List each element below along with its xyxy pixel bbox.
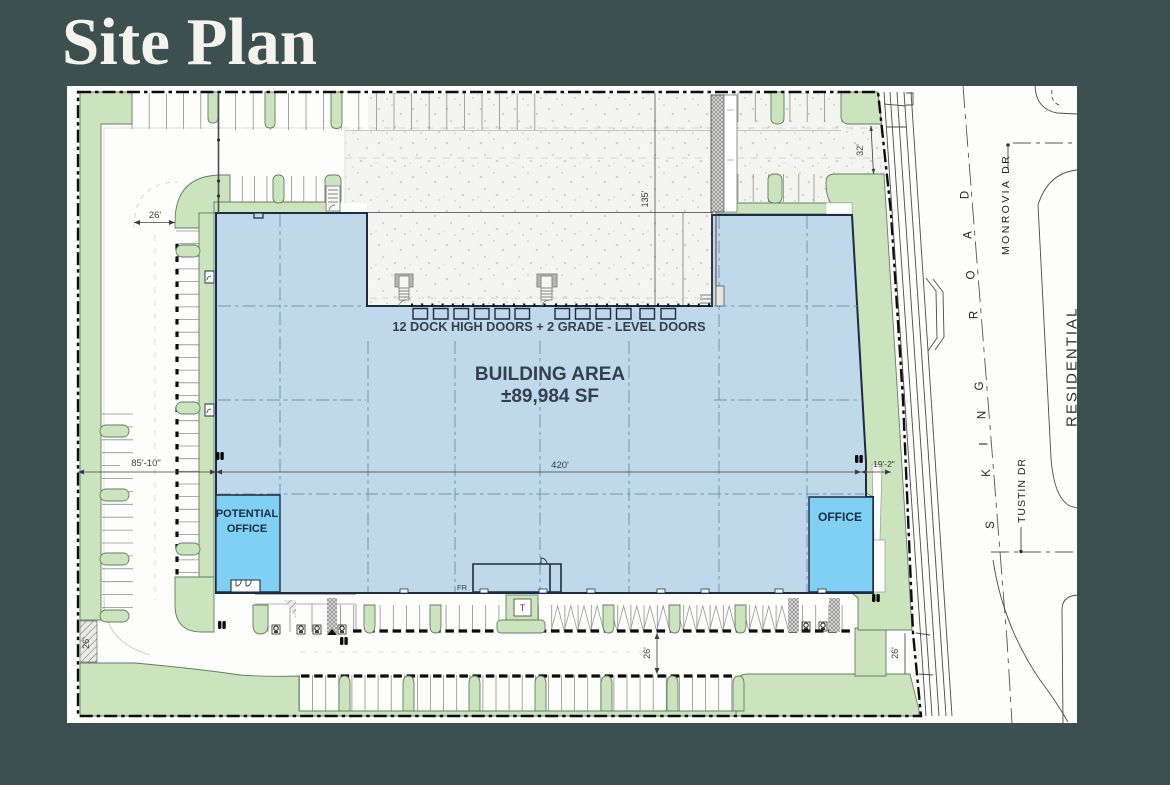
svg-text:K: K — [981, 469, 993, 477]
svg-text:MONROVIA DR: MONROVIA DR — [1000, 154, 1012, 255]
svg-text:N: N — [976, 411, 988, 419]
svg-text:26': 26' — [890, 647, 900, 659]
svg-text:D: D — [960, 191, 972, 199]
svg-text:85'-10": 85'-10" — [131, 458, 160, 469]
svg-text:26': 26' — [149, 210, 162, 221]
svg-text:OFFICE: OFFICE — [227, 523, 267, 535]
svg-text:I: I — [979, 442, 991, 445]
svg-text:19'-2": 19'-2" — [873, 459, 895, 469]
svg-text:Site Plan: Site Plan — [62, 5, 317, 79]
svg-text:135': 135' — [640, 190, 650, 207]
svg-text:OFFICE: OFFICE — [818, 510, 862, 524]
svg-text:12 DOCK HIGH DOORS + 2 GRADE -: 12 DOCK HIGH DOORS + 2 GRADE - LEVEL DOO… — [392, 320, 705, 334]
svg-text:BUILDING AREA: BUILDING AREA — [475, 364, 626, 385]
svg-text:T: T — [520, 603, 526, 613]
svg-text:26': 26' — [81, 637, 91, 649]
svg-text:R: R — [969, 311, 981, 319]
svg-text:FR: FR — [457, 583, 468, 592]
svg-text:G: G — [974, 381, 986, 390]
svg-text:POTENTIAL: POTENTIAL — [216, 508, 279, 520]
svg-text:TUSTIN DR: TUSTIN DR — [1016, 458, 1028, 523]
svg-text:O: O — [966, 270, 978, 279]
svg-text:±89,984 SF: ±89,984 SF — [501, 386, 599, 407]
svg-text:A: A — [963, 231, 975, 239]
svg-text:420': 420' — [551, 460, 569, 471]
svg-text:26': 26' — [642, 647, 652, 659]
svg-text:32': 32' — [855, 144, 865, 156]
svg-text:S: S — [985, 521, 997, 529]
